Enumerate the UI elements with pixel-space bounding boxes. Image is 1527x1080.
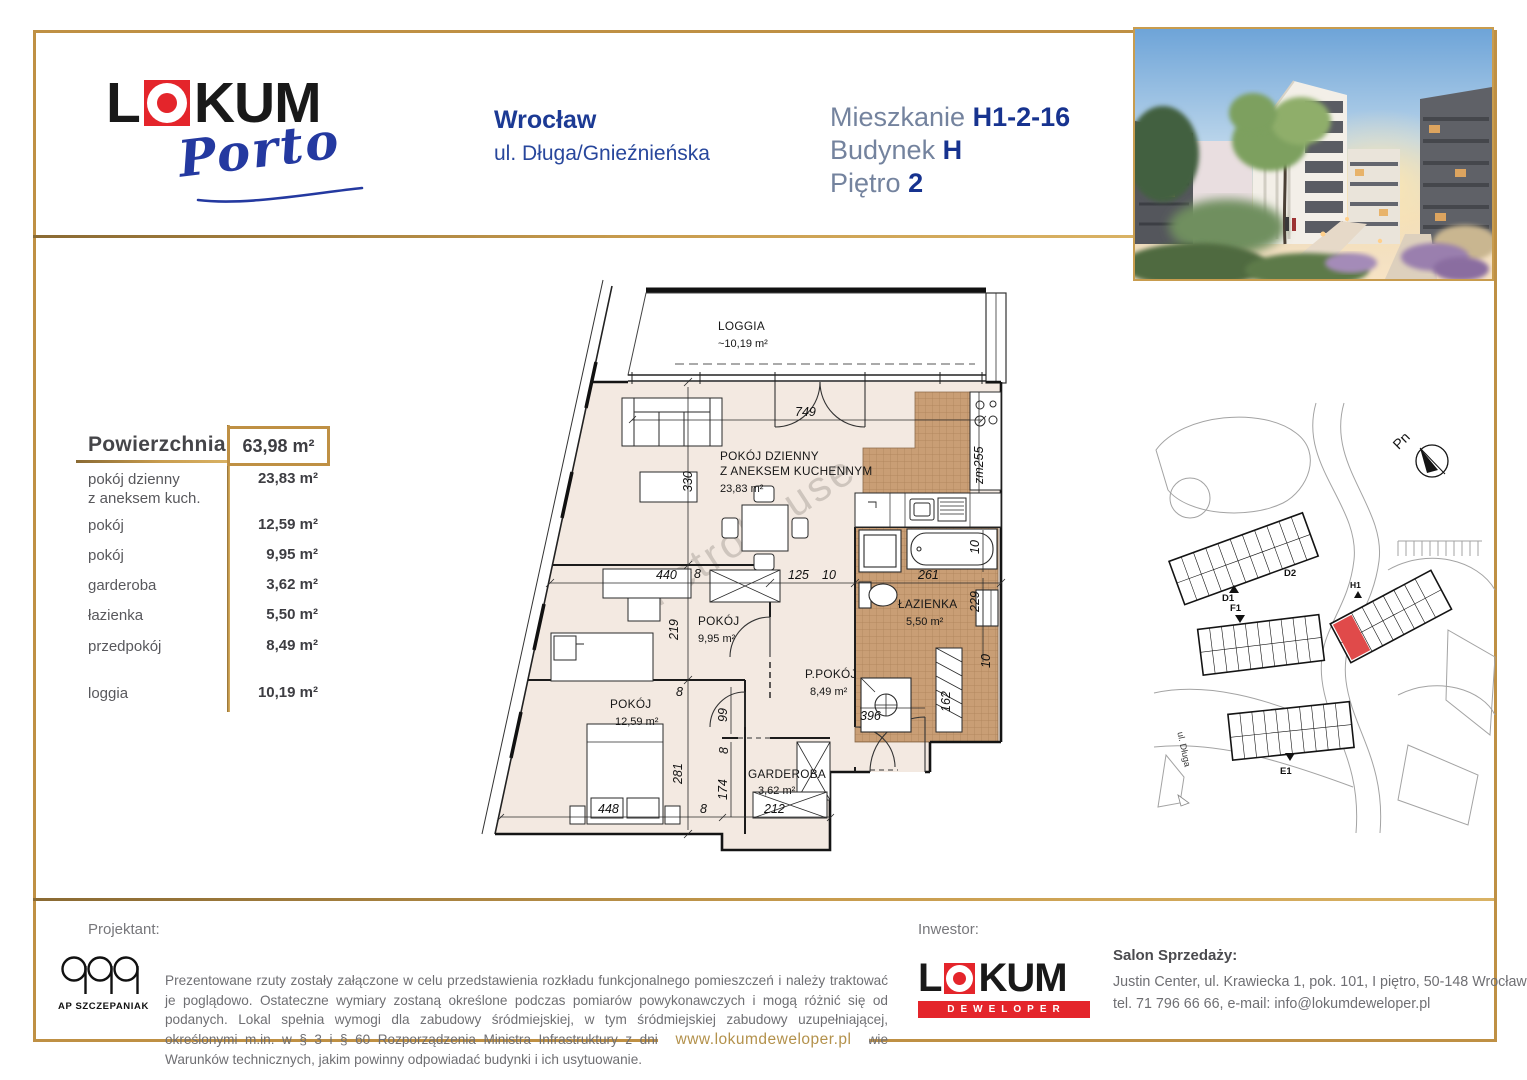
svg-text:9,95 m²: 9,95 m²: [698, 633, 736, 645]
site-streets: [1154, 403, 1495, 833]
sales-office-address: Justin Center, ul. Krawiecka 1, pok. 101…: [1113, 971, 1527, 993]
svg-text:174: 174: [716, 779, 730, 800]
pokoj2-label: POKÓJ: [610, 697, 652, 711]
svg-text:23,83 m²: 23,83 m²: [720, 483, 764, 495]
pokoj1-label: POKÓJ: [698, 614, 740, 628]
desk-chair: [628, 598, 660, 621]
garderoba-label: GARDEROBA: [748, 767, 826, 781]
svg-text:12,59 m²: 12,59 m²: [615, 716, 659, 728]
deweloper-bar: DEWELOPER: [918, 1001, 1090, 1018]
ppokoj-label: P.POKÓJ: [805, 667, 857, 681]
building-d: [1169, 513, 1318, 605]
total-area-value: 63,98 m²: [242, 436, 314, 457]
svg-text:F1: F1: [1230, 603, 1242, 614]
footer-divider-line: [33, 898, 1494, 901]
sales-office-block: Salon Sprzedaży: Justin Center, ul. Kraw…: [1113, 947, 1527, 1015]
svg-text:396: 396: [860, 709, 881, 723]
svg-text:E1: E1: [1280, 766, 1292, 777]
area-table-title: Powierzchnia: [88, 433, 226, 457]
flyer-page: L KUM Porto Wrocław ul. Długa/Gnieźnieńs…: [0, 0, 1527, 1080]
north-arrow-icon: Pn: [1389, 429, 1448, 477]
apartment-info: Mieszkanie H1-2-16 Budynek H Piętro 2: [830, 101, 1070, 200]
lazienka-label: ŁAZIENKA: [898, 597, 957, 611]
sofa: [622, 398, 722, 446]
svg-text:8: 8: [676, 685, 683, 699]
building-line: Budynek H: [830, 134, 1070, 167]
desk: [603, 569, 691, 598]
lokum-deweloper-logo: L KUM DEWELOPER: [918, 958, 1090, 1018]
ap-szczepaniak-logo: AP SZCZEPANIAK: [58, 952, 158, 1016]
loggia-structure: [628, 290, 1006, 384]
lokum-o-icon-small: [944, 963, 975, 994]
inwestor-label: Inwestor:: [918, 921, 979, 938]
svg-text:8: 8: [717, 747, 731, 754]
svg-text:281: 281: [671, 763, 685, 785]
projektant-name: AP SZCZEPANIAK: [58, 1001, 149, 1012]
svg-text:749: 749: [795, 405, 816, 419]
legal-disclaimer: Prezentowane rzuty zostały załączone w c…: [165, 971, 888, 1070]
svg-text:8: 8: [694, 567, 701, 581]
apartment-number-line: Mieszkanie H1-2-16: [830, 101, 1070, 134]
header-divider-line: [33, 235, 1133, 238]
svg-text:229: 229: [968, 591, 982, 613]
north-label: Pn: [1389, 429, 1412, 452]
svg-text:Z ANEKSEM KUCHENNYM: Z ANEKSEM KUCHENNYM: [720, 464, 873, 478]
svg-text:H1: H1: [1350, 580, 1361, 590]
building-e: [1228, 702, 1354, 761]
svg-text:5,50 m²: 5,50 m²: [906, 616, 944, 628]
area-table-underline: [76, 460, 228, 463]
building-h: [1330, 570, 1451, 662]
svg-text:D2: D2: [1284, 568, 1296, 579]
svg-text:~10,19 m²: ~10,19 m²: [718, 338, 768, 350]
porto-underline-swoosh: [196, 186, 364, 204]
total-area-box: 63,98 m²: [227, 426, 330, 466]
svg-text:10: 10: [979, 654, 993, 668]
svg-text:zm255: zm255: [972, 446, 986, 485]
svg-text:219: 219: [667, 619, 681, 641]
projektant-label: Projektant:: [88, 921, 160, 938]
exterior-stair-hatch: [936, 648, 962, 732]
svg-text:8: 8: [700, 802, 707, 816]
svg-text:330: 330: [681, 471, 695, 492]
floor-plan: metrohouse: [470, 272, 1050, 880]
city-name: Wrocław: [494, 106, 710, 135]
svg-text:8,49 m²: 8,49 m²: [810, 686, 848, 698]
svg-text:10: 10: [968, 540, 982, 554]
building-f: [1198, 615, 1325, 676]
sales-office-contact: tel. 71 796 66 66, e-mail: info@lokumdew…: [1113, 993, 1527, 1015]
svg-text:440: 440: [656, 568, 677, 582]
location-block: Wrocław ul. Długa/Gnieźnieńska: [494, 106, 710, 166]
area-table-vertical-rule: [227, 425, 230, 712]
site-buildings: [1169, 513, 1452, 760]
site-plan: D1 D2 F1 H1 E1 Pn ul. Długa: [1148, 395, 1500, 835]
lokum-o-icon: [144, 80, 190, 126]
svg-text:3,62 m²: 3,62 m²: [758, 785, 796, 797]
svg-text:261: 261: [917, 568, 939, 582]
dining-table: [742, 505, 788, 551]
building-render-photo: [1133, 27, 1494, 281]
svg-text:99: 99: [716, 708, 730, 722]
loggia-label: LOGGIA: [718, 319, 765, 333]
living-label: POKÓJ DZIENNY: [720, 449, 819, 463]
sales-office-title: Salon Sprzedaży:: [1113, 947, 1527, 964]
street-name: ul. Długa/Gnieźnieńska: [494, 142, 710, 166]
logo-letter-l: L: [106, 75, 140, 132]
svg-text:125: 125: [788, 568, 809, 582]
floor-line: Piętro 2: [830, 167, 1070, 200]
svg-text:448: 448: [598, 802, 619, 816]
svg-text:162: 162: [939, 691, 953, 712]
street-label: ul. Długa: [1175, 731, 1192, 768]
svg-text:10: 10: [822, 568, 836, 582]
render-scene: [1135, 29, 1492, 279]
street-label-group: ul. Długa: [1175, 731, 1192, 806]
svg-text:212: 212: [763, 802, 785, 816]
website-link[interactable]: www.lokumdeweloper.pl: [658, 1029, 870, 1051]
